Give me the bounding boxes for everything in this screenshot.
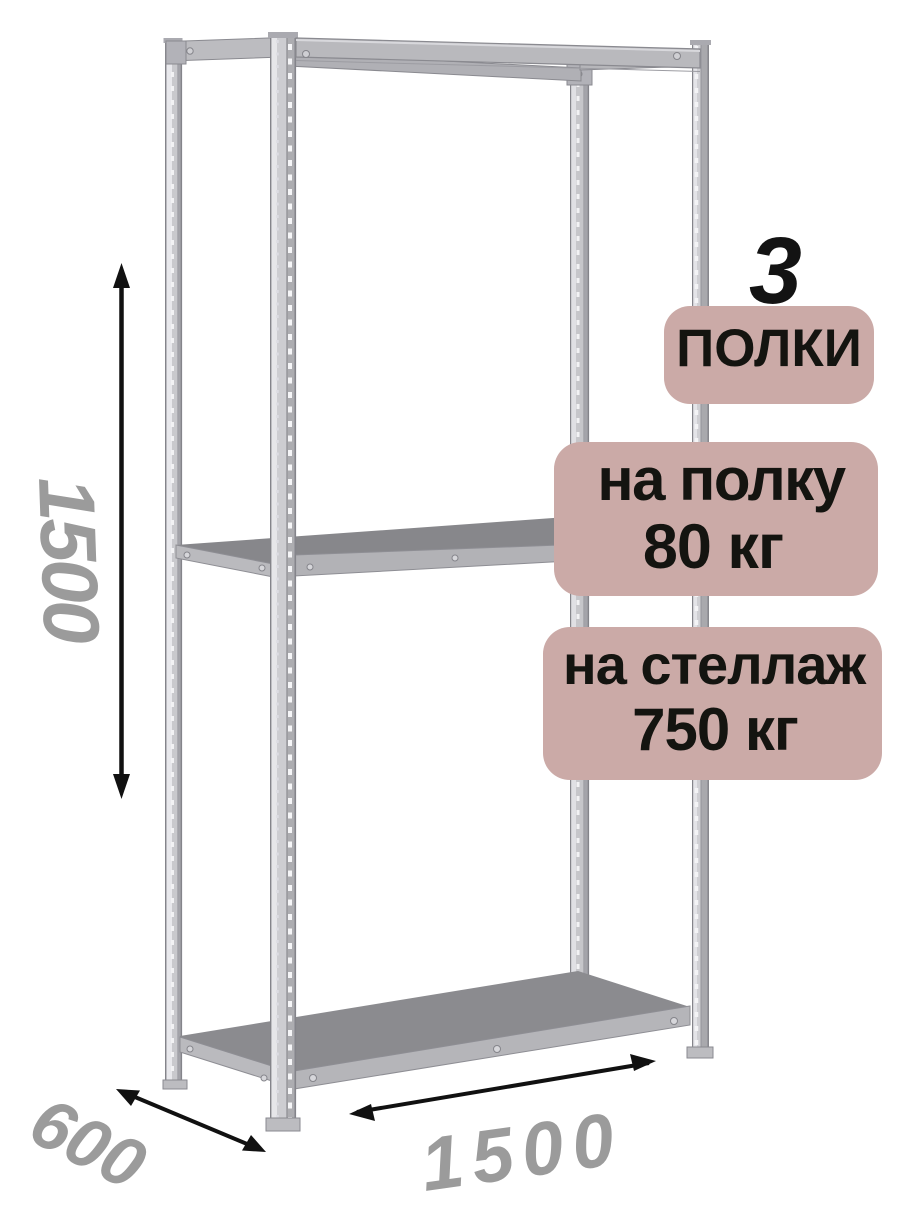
svg-text:на стеллаж: на стеллаж [563,633,868,696]
svg-text:1500: 1500 [22,475,117,645]
svg-text:ПОЛКИ: ПОЛКИ [676,319,862,378]
svg-text:на полку: на полку [597,446,846,513]
svg-text:80 кг: 80 кг [643,512,783,582]
svg-text:750 кг: 750 кг [632,696,798,763]
